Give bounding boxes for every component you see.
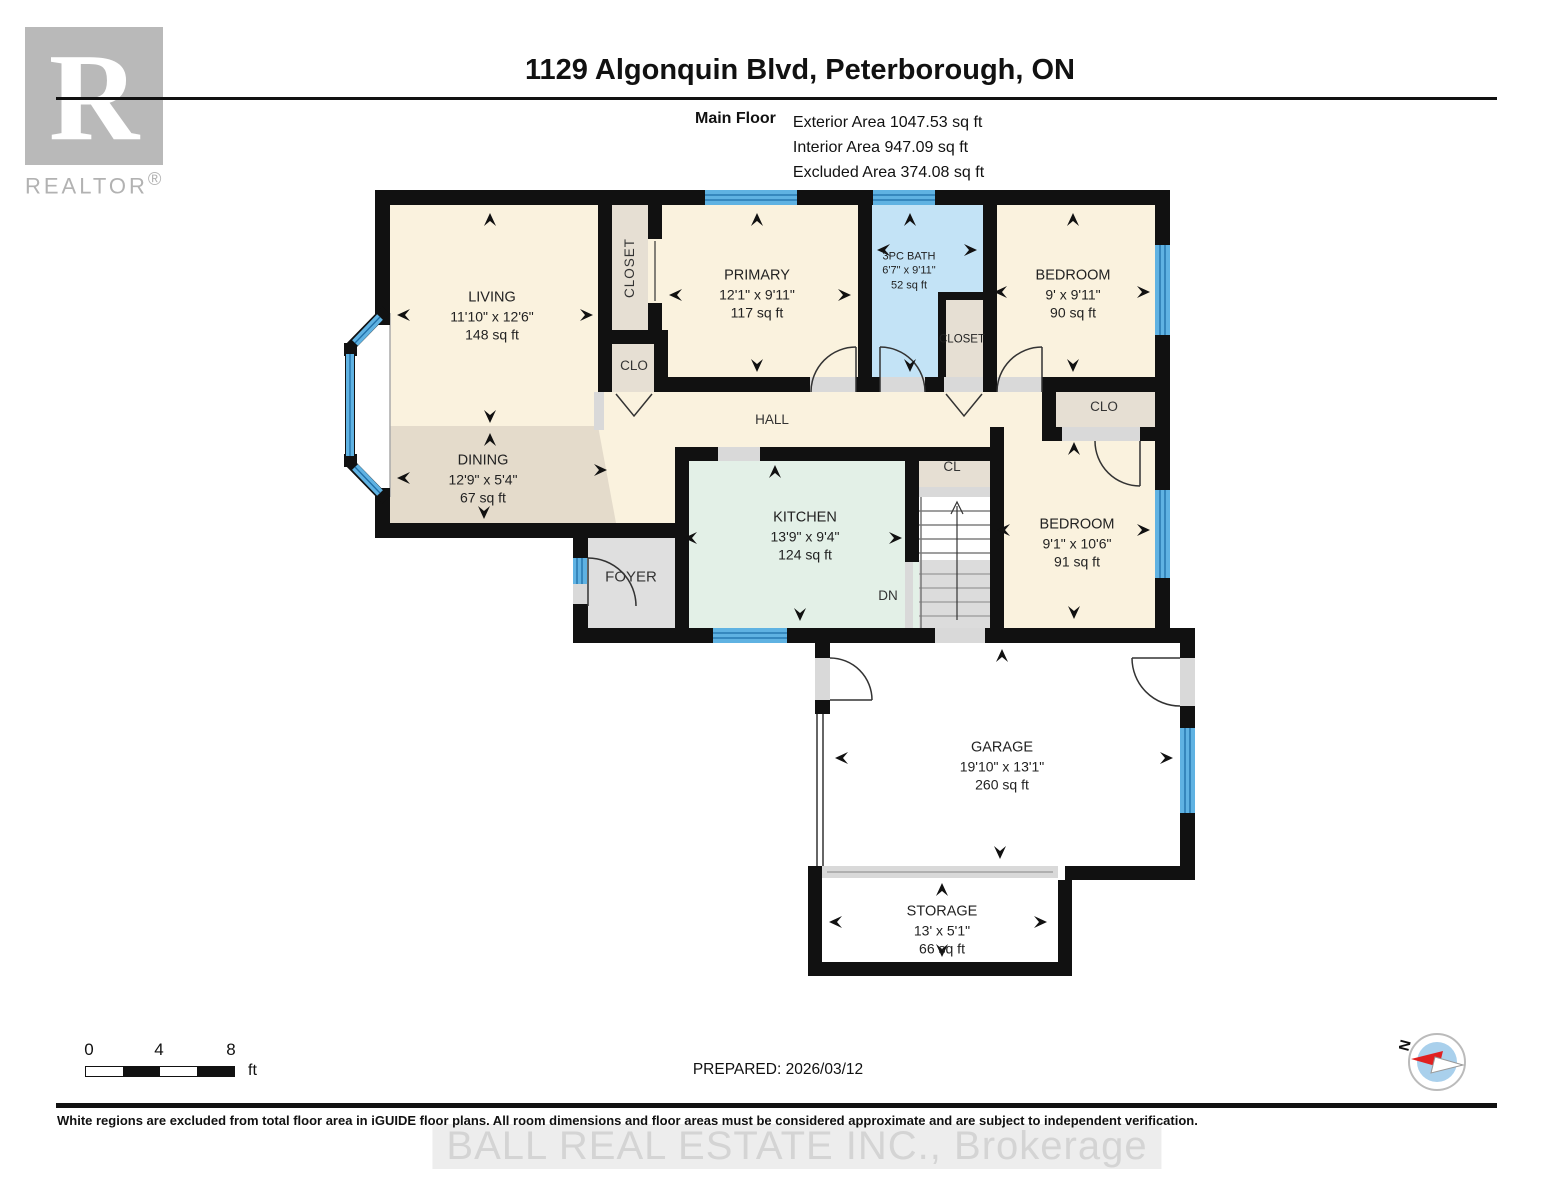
room-label-cl: CL (943, 458, 960, 476)
floor-plan-svg (0, 0, 1553, 1200)
room-label-bedroom-2: BEDROOM 9'1" x 10'6" 91 sq ft (1040, 515, 1115, 570)
disclaimer-text: White regions are excluded from total fl… (57, 1113, 1198, 1128)
room-label-primary: PRIMARY 12'1" x 9'11" 117 sq ft (719, 266, 795, 321)
room-label-foyer: FOYER (605, 567, 657, 587)
prepared-date: PREPARED: 2026/03/12 (693, 1061, 863, 1079)
room-label-clo-left: CLO (620, 357, 648, 375)
room-label-garage: GARAGE 19'10" x 13'1" 260 sq ft (960, 738, 1045, 793)
room-label-storage: STORAGE 13' x 5'1" 66 sq ft (907, 902, 978, 957)
room-label-hall: HALL (755, 411, 789, 429)
compass-north-label: N (1399, 1038, 1415, 1053)
scale-bar-unit: ft (248, 1062, 257, 1080)
room-label-clo-right: CLO (1090, 398, 1118, 416)
room-label-living: LIVING 11'10" x 12'6" 148 sq ft (450, 288, 534, 343)
room-label-bath: 3PC BATH 6'7" x 9'11" 52 sq ft (882, 250, 935, 293)
stairs-down-label: DN (878, 587, 898, 605)
room-label-bedroom-1: BEDROOM 9' x 9'11" 90 sq ft (1036, 266, 1111, 321)
room-label-closet-bath: CLOSET (939, 333, 985, 348)
room-label-closet-left: CLOSET (621, 238, 639, 298)
scale-bar (85, 1066, 235, 1077)
compass-icon: N (1399, 1026, 1469, 1096)
brokerage-watermark: BALL REAL ESTATE INC., Brokerage (432, 1124, 1161, 1169)
room-label-kitchen: KITCHEN 13'9" x 9'4" 124 sq ft (771, 508, 840, 563)
floor-plan-page: R REALTOR® 1129 Algonquin Blvd, Peterbor… (0, 0, 1553, 1200)
room-label-dining: DINING 12'9" x 5'4" 67 sq ft (449, 451, 518, 506)
footer-divider (56, 1103, 1497, 1108)
